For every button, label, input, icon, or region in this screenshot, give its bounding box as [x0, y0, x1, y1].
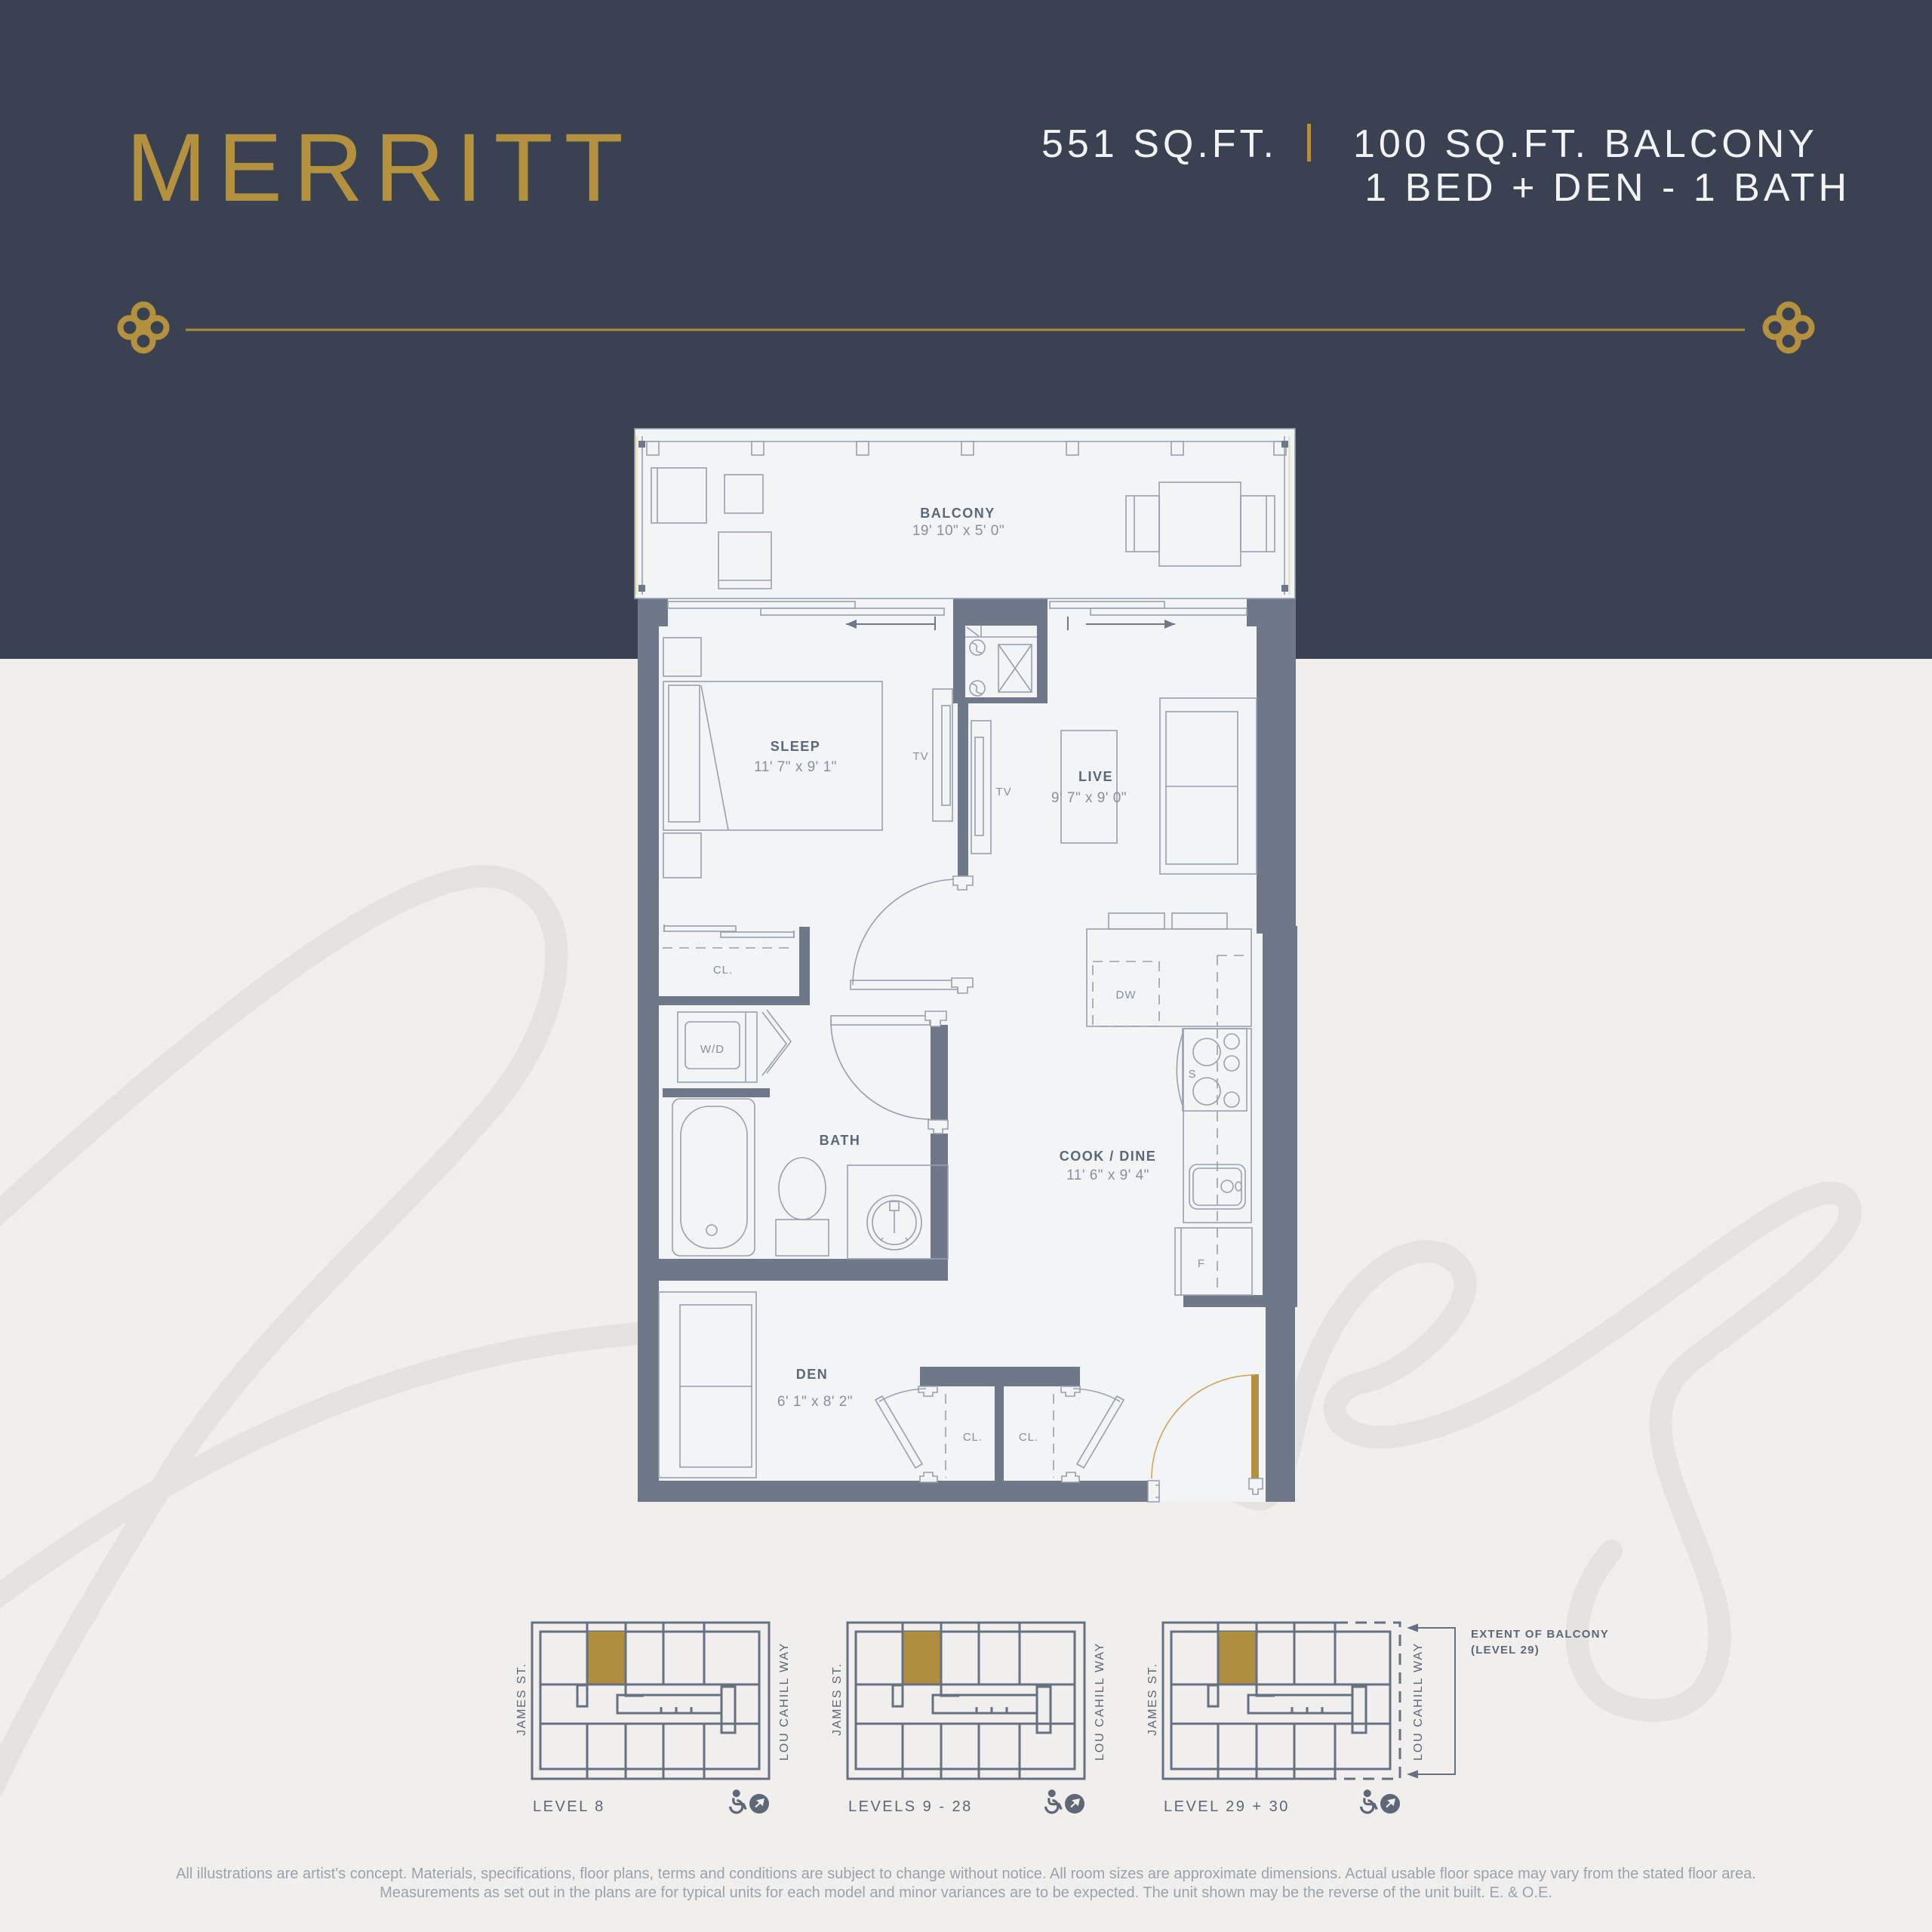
svg-text:19' 10" x 5' 0": 19' 10" x 5' 0" [912, 523, 1004, 539]
svg-text:JAMES ST.: JAMES ST. [515, 1663, 528, 1736]
svg-text:JAMES ST.: JAMES ST. [1146, 1663, 1159, 1736]
svg-text:All illustrations are artist's: All illustrations are artist's concept. … [176, 1866, 1756, 1882]
svg-text:LEVEL 29 + 30: LEVEL 29 + 30 [1164, 1798, 1290, 1815]
svg-text:TV: TV [995, 786, 1011, 798]
svg-text:LOU CAHILL WAY: LOU CAHILL WAY [1412, 1642, 1425, 1761]
svg-text:CL.: CL. [713, 964, 733, 977]
svg-text:LEVELS 9 - 28: LEVELS 9 - 28 [848, 1798, 973, 1815]
svg-text:SLEEP: SLEEP [771, 739, 821, 754]
svg-text:LIVE: LIVE [1078, 769, 1113, 784]
svg-text:W/D: W/D [700, 1043, 724, 1056]
svg-text:COOK / DINE: COOK / DINE [1060, 1149, 1157, 1164]
svg-text:BALCONY: BALCONY [920, 506, 995, 521]
svg-text:F: F [1198, 1257, 1205, 1270]
svg-text:TV: TV [912, 750, 928, 763]
svg-text:EXTENT OF BALCONY: EXTENT OF BALCONY [1471, 1628, 1609, 1641]
svg-text:DEN: DEN [796, 1367, 829, 1382]
svg-text:Measurements as set out in the: Measurements as set out in the plans are… [380, 1884, 1552, 1901]
svg-text:S: S [1188, 1068, 1196, 1081]
svg-text:6' 1" x 8' 2": 6' 1" x 8' 2" [777, 1394, 853, 1410]
svg-text:1 BED + DEN - 1 BATH: 1 BED + DEN - 1 BATH [1364, 166, 1850, 210]
svg-text:11' 7" x 9' 1": 11' 7" x 9' 1" [754, 759, 837, 775]
svg-text:11' 6" x 9' 4": 11' 6" x 9' 4" [1066, 1168, 1149, 1183]
svg-text:551 SQ.FT.: 551 SQ.FT. [1041, 122, 1278, 166]
svg-text:LOU CAHILL WAY: LOU CAHILL WAY [778, 1642, 791, 1761]
svg-text:CL.: CL. [1019, 1431, 1038, 1444]
svg-text:LOU CAHILL WAY: LOU CAHILL WAY [1094, 1642, 1106, 1761]
svg-text:9' 7" x 9' 0": 9' 7" x 9' 0" [1051, 790, 1127, 806]
svg-text:MERRITT: MERRITT [126, 114, 635, 222]
svg-text:JAMES ST.: JAMES ST. [831, 1663, 844, 1736]
svg-text:BATH: BATH [820, 1133, 861, 1148]
svg-text:100 SQ.FT. BALCONY: 100 SQ.FT. BALCONY [1353, 122, 1818, 166]
svg-text:(LEVEL 29): (LEVEL 29) [1471, 1644, 1540, 1657]
svg-text:CL.: CL. [963, 1431, 983, 1444]
svg-text:LEVEL 8: LEVEL 8 [533, 1798, 605, 1815]
svg-text:DW: DW [1116, 989, 1137, 1001]
